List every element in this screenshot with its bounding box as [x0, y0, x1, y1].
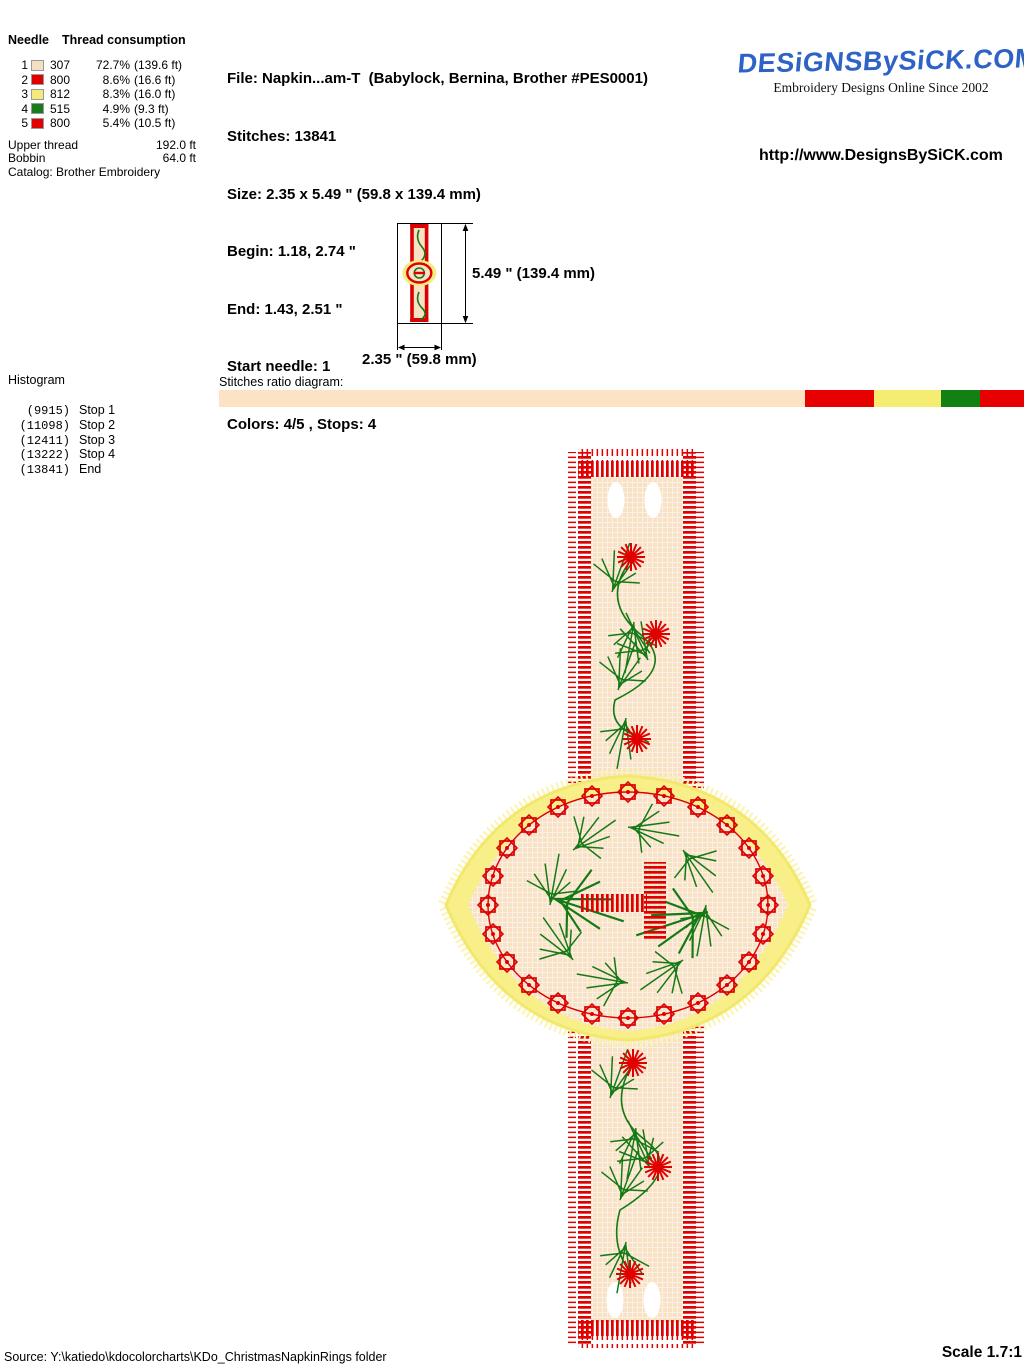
brand-tagline: Embroidery Designs Online Since 2002 [738, 80, 1024, 96]
thread-color-swatch [31, 74, 44, 85]
dimension-frame [398, 223, 474, 350]
needle-number: 3 [8, 87, 28, 101]
needle-number: 1 [8, 58, 28, 72]
pompom-flower [619, 1049, 647, 1077]
print-preview-page: Needle Thread consumption 1 307 72.7% (1… [0, 0, 1024, 1370]
thread-length: (9.3 ft) [134, 102, 169, 116]
scale-label: Scale 1.7:1 [942, 1344, 1022, 1362]
height-dimension-label: 5.49 " (139.4 mm) [472, 265, 595, 282]
ratio-segment [219, 390, 805, 407]
pompom-flower [642, 620, 670, 648]
website-url: http://www.DesignsBySiCK.com [759, 147, 1003, 165]
bobbin-label: Bobbin [8, 151, 45, 164]
ratio-segment [941, 390, 980, 407]
thread-totals: Upper thread 192.0 ft Bobbin 64.0 ft [8, 138, 196, 164]
file-name-line: File: Napkin...am-T (Babylock, Bernina, … [227, 69, 648, 88]
needle-row: 2 800 8.6% (16.6 ft) [8, 73, 223, 88]
needle-number: 2 [8, 73, 28, 87]
buttonhole [644, 1282, 661, 1318]
brand-block: DESiGNSBySiCK.COM Embroidery Designs Onl… [738, 46, 1024, 96]
thread-color-swatch [31, 89, 44, 100]
thread-color-swatch [31, 118, 44, 129]
strip-top-border [578, 461, 696, 477]
designsbysick-logo: DESiGNSBySiCK.COM [736, 44, 1024, 80]
pompom-flower [623, 725, 651, 753]
thread-length: (139.6 ft) [134, 58, 182, 72]
buttonhole [645, 482, 662, 518]
needle-col-header: Needle [8, 33, 49, 47]
pompom-flower [644, 1153, 672, 1181]
strip-top-fringe [578, 449, 696, 461]
ratio-bar [219, 390, 1024, 407]
needle-table-header: Needle Thread consumption [8, 33, 223, 47]
buttonhole [607, 1282, 624, 1318]
ratio-segment [874, 390, 941, 407]
medallion [446, 776, 810, 1040]
needle-number: 4 [8, 102, 28, 116]
thread-code: 812 [50, 87, 86, 101]
thread-percent: 8.6% [86, 73, 130, 87]
stitches-line: Stitches: 13841 [227, 127, 648, 146]
thread-length: (10.5 ft) [134, 116, 175, 130]
ratio-segment [980, 390, 1024, 407]
bobbin-value: 64.0 ft [163, 151, 196, 164]
buttonhole [608, 482, 625, 518]
needle-number: 5 [8, 116, 28, 130]
dimension-arrows [398, 224, 468, 351]
needle-row: 3 812 8.3% (16.0 ft) [8, 87, 223, 102]
pompom-flower [616, 1260, 644, 1288]
consumption-col-header: Thread consumption [62, 33, 186, 47]
thread-code: 800 [50, 73, 86, 87]
thread-percent: 5.4% [86, 116, 130, 130]
thread-code: 307 [50, 58, 86, 72]
upper-thread-value: 192.0 ft [156, 138, 196, 151]
needle-row: 4 515 4.9% (9.3 ft) [8, 102, 223, 117]
stop-label: Stop 2 [79, 418, 115, 432]
thread-color-swatch [31, 103, 44, 114]
upper-thread-label: Upper thread [8, 138, 78, 151]
thumbnail-diagram [360, 215, 620, 365]
histogram-row: (9915) Stop 1 [8, 403, 115, 418]
size-line: Size: 2.35 x 5.49 " (59.8 x 139.4 mm) [227, 185, 648, 204]
thread-percent: 72.7% [86, 58, 130, 72]
thread-color-swatch [31, 60, 44, 71]
strip-bottom-border [578, 1320, 696, 1336]
mini-design [402, 224, 436, 322]
needle-row: 1 307 72.7% (139.6 ft) [8, 58, 223, 73]
colors-stops-line: Colors: 4/5 , Stops: 4 [227, 415, 648, 434]
embroidery-design-preview [0, 440, 1024, 1355]
stop-count: (9915) [8, 404, 70, 418]
histogram-row: (11098) Stop 2 [8, 418, 115, 433]
needle-row: 5 800 5.4% (10.5 ft) [8, 116, 223, 131]
histogram-title: Histogram [8, 373, 115, 387]
pompom-flower [617, 543, 645, 571]
thread-percent: 4.9% [86, 102, 130, 116]
source-path: Source: Y:\katiedo\kdocolorcharts\KDo_Ch… [4, 1350, 387, 1364]
strip-bottom-fringe [578, 1336, 696, 1348]
catalog-line: Catalog: Brother Embroidery [8, 165, 223, 179]
stop-label: Stop 1 [79, 403, 115, 417]
thread-code: 515 [50, 102, 86, 116]
thread-length: (16.6 ft) [134, 73, 175, 87]
width-dimension-label: 2.35 " (59.8 mm) [362, 351, 477, 368]
ratio-diagram-label: Stitches ratio diagram: [219, 375, 343, 389]
ratio-segment [805, 390, 874, 407]
thread-percent: 8.3% [86, 87, 130, 101]
stop-count: (11098) [8, 419, 70, 433]
thread-length: (16.0 ft) [134, 87, 175, 101]
thread-code: 800 [50, 116, 86, 130]
needle-table: Needle Thread consumption 1 307 72.7% (1… [8, 33, 223, 179]
